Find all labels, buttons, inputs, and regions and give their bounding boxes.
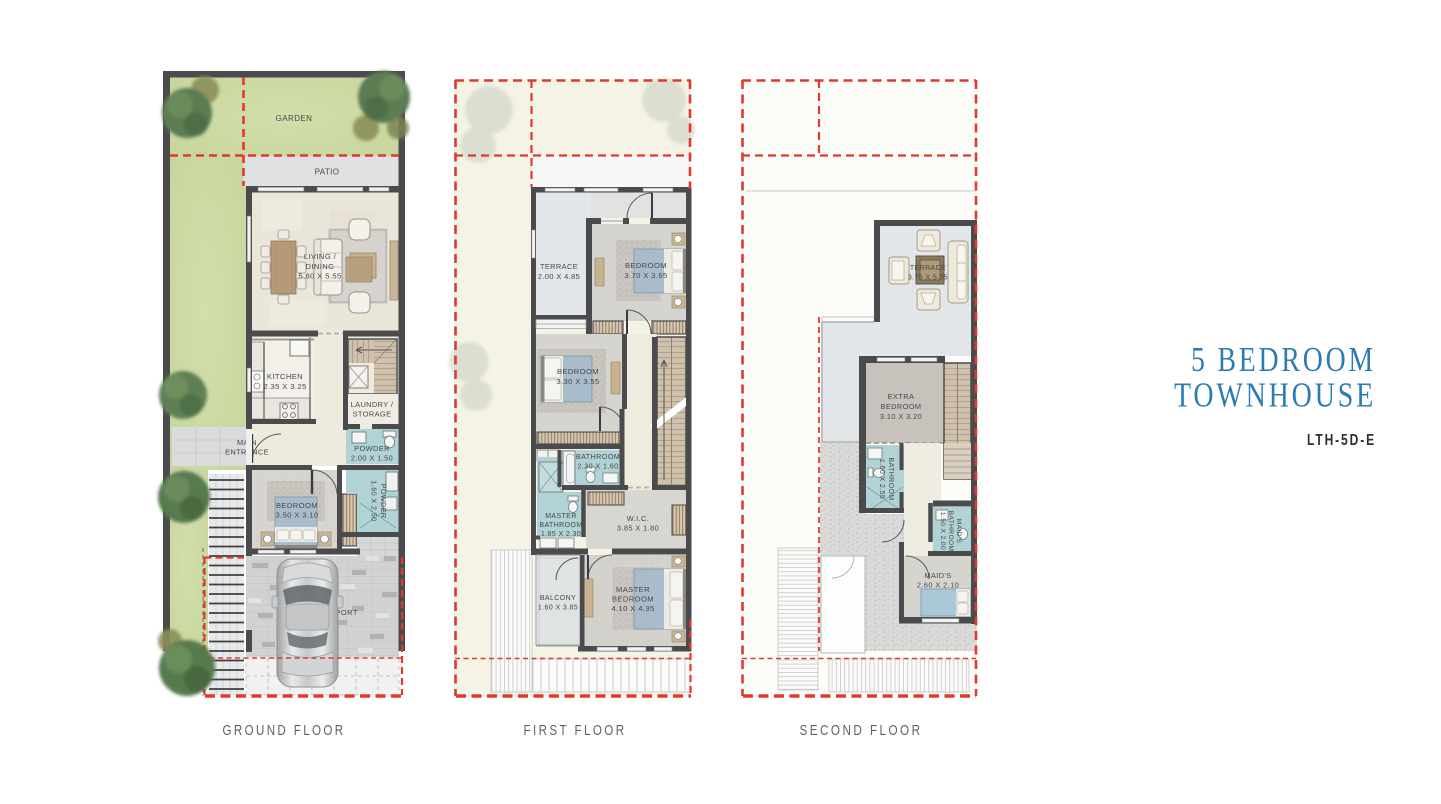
- svg-text:1.85 X 2.30: 1.85 X 2.30: [541, 531, 581, 538]
- svg-text:LAUNDRY /: LAUNDRY /: [351, 400, 394, 409]
- svg-text:5 BEDROOM: 5 BEDROOM: [1191, 341, 1376, 379]
- svg-text:BEDROOM: BEDROOM: [625, 261, 667, 270]
- svg-text:3.50 X 3.10: 3.50 X 3.10: [275, 511, 318, 520]
- svg-text:1.60 X 2.50: 1.60 X 2.50: [370, 480, 379, 521]
- svg-text:DINING: DINING: [306, 262, 335, 271]
- svg-text:LTH-5D-E: LTH-5D-E: [1307, 432, 1376, 449]
- svg-text:GARDEN: GARDEN: [276, 114, 313, 123]
- svg-text:3.30 X 3.55: 3.30 X 3.55: [556, 377, 599, 386]
- svg-text:PATIO: PATIO: [315, 168, 340, 177]
- svg-text:5.80 X 5.55: 5.80 X 5.55: [298, 272, 341, 281]
- svg-text:2.60 X 2.10: 2.60 X 2.10: [917, 581, 959, 590]
- svg-text:STORAGE: STORAGE: [353, 410, 392, 419]
- svg-text:TOWNHOUSE: TOWNHOUSE: [1174, 377, 1376, 415]
- svg-text:EXTRA: EXTRA: [888, 392, 915, 401]
- svg-text:BEDROOM: BEDROOM: [881, 402, 922, 411]
- svg-text:2.00 X 1.50: 2.00 X 1.50: [351, 454, 393, 463]
- svg-text:MASTER: MASTER: [545, 513, 577, 520]
- svg-text:POWDER: POWDER: [354, 444, 390, 453]
- svg-text:BATHROOM: BATHROOM: [887, 457, 894, 500]
- svg-text:KITCHEN: KITCHEN: [267, 372, 303, 381]
- svg-text:BEDROOM: BEDROOM: [276, 501, 318, 510]
- svg-text:3.10 X 3.20: 3.10 X 3.20: [880, 412, 922, 421]
- svg-text:FIRST FLOOR: FIRST FLOOR: [524, 723, 627, 739]
- svg-text:BATHROOM: BATHROOM: [539, 522, 582, 529]
- svg-text:3.70 X 3.65: 3.70 X 3.65: [624, 271, 667, 280]
- svg-text:BEDROOM: BEDROOM: [557, 367, 599, 376]
- svg-text:BALCONY: BALCONY: [540, 595, 576, 602]
- svg-text:SECOND FLOOR: SECOND FLOOR: [800, 723, 923, 739]
- svg-text:GROUND FLOOR: GROUND FLOOR: [223, 723, 346, 739]
- svg-text:TERRACE: TERRACE: [540, 262, 578, 271]
- svg-text:2.35 X 3.25: 2.35 X 3.25: [263, 382, 306, 391]
- svg-text:TERRACE: TERRACE: [910, 265, 946, 272]
- svg-text:3.75 X 5.05: 3.75 X 5.05: [908, 275, 948, 282]
- svg-text:2.30 X 1.60: 2.30 X 1.60: [577, 462, 618, 471]
- svg-text:MASTER: MASTER: [616, 585, 650, 594]
- svg-text:BATHROOM: BATHROOM: [576, 452, 620, 461]
- svg-text:1.60 X 3.85: 1.60 X 3.85: [538, 605, 578, 612]
- svg-text:BATHROOM: BATHROOM: [947, 511, 954, 552]
- svg-text:POWDER: POWDER: [379, 484, 388, 519]
- svg-text:MAID'S: MAID'S: [955, 519, 962, 544]
- svg-text:1.60 X 2.55: 1.60 X 2.55: [878, 459, 885, 499]
- svg-text:1.50 X 2.00: 1.50 X 2.00: [939, 512, 946, 550]
- svg-text:3.85 X 1.80: 3.85 X 1.80: [617, 524, 659, 533]
- svg-text:4.10 X 4.35: 4.10 X 4.35: [611, 604, 654, 613]
- svg-text:2.00 X 4.85: 2.00 X 4.85: [538, 272, 580, 281]
- svg-text:W.I.C.: W.I.C.: [627, 514, 650, 523]
- svg-text:BEDROOM: BEDROOM: [612, 595, 654, 604]
- svg-text:LIVING /: LIVING /: [304, 252, 337, 261]
